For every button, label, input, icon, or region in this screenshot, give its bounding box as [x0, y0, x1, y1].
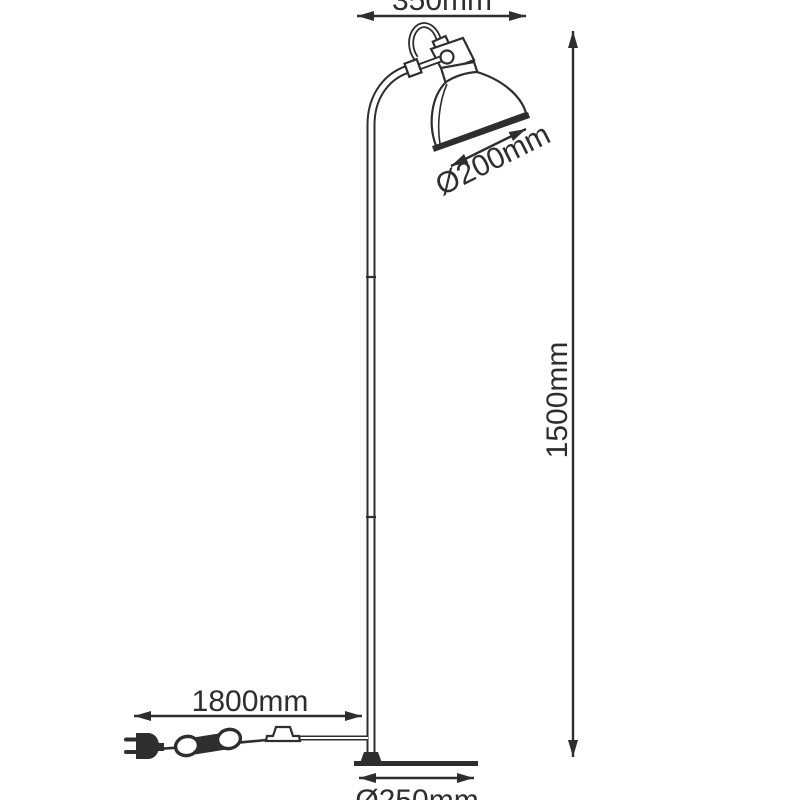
pivot-knob — [441, 51, 454, 64]
plug-body — [136, 733, 159, 759]
plug-prong-bottom — [124, 750, 137, 754]
drawing-background — [0, 0, 800, 800]
height-label: 1500mm — [541, 342, 574, 459]
base-diameter-label: Ø250mm — [355, 784, 478, 800]
plug-neck — [157, 743, 164, 751]
head-width-label: 350mm — [392, 0, 492, 17]
base-plate — [354, 761, 478, 766]
technical-drawing-page: 350mm Ø200mm 1500mm 1800mm Ø250mm — [0, 0, 800, 800]
plug-prong-top — [124, 738, 137, 742]
floor-lamp-dimension-diagram: 350mm Ø200mm 1500mm 1800mm Ø250mm — [0, 0, 800, 800]
cable-length-label: 1800mm — [192, 685, 309, 718]
